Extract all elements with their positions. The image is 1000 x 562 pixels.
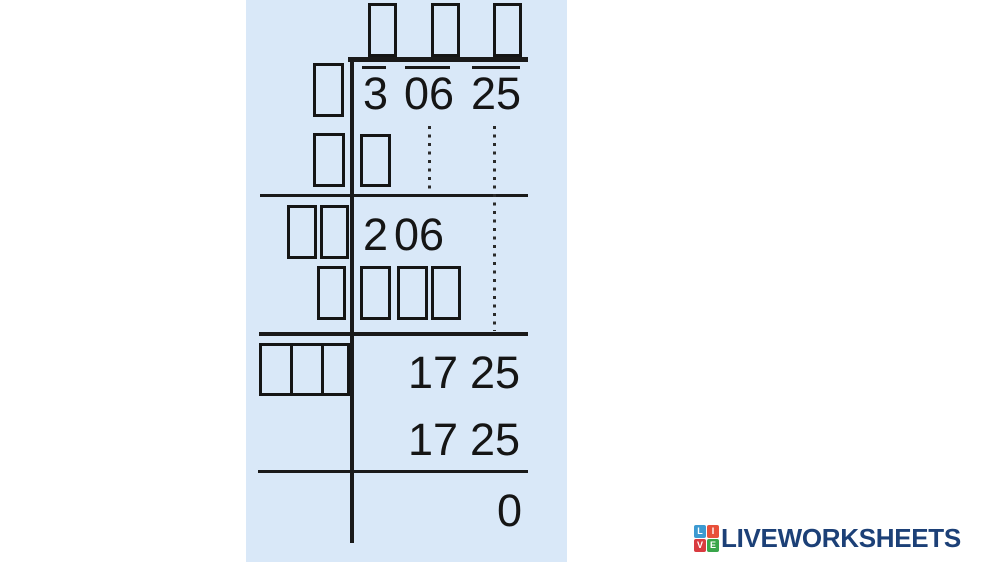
work-row2-group-1: 17: [408, 350, 458, 395]
liveworksheets-logo-icon: L I V E: [694, 525, 719, 552]
radicand-group-3: 25: [471, 71, 521, 116]
liveworksheets-logo: L I V E LIVEWORKSHEETS: [694, 523, 961, 554]
answer-box-row5-grid[interactable]: [259, 343, 350, 396]
answer-box-row4-left[interactable]: [317, 266, 346, 320]
answer-box-row4-right-1[interactable]: [360, 266, 391, 320]
work-row2-group-2: 25: [470, 350, 520, 395]
answer-box-row4-right-2[interactable]: [397, 266, 428, 320]
logo-tile-v: V: [694, 539, 706, 552]
dotted-guide-line-1: [428, 126, 431, 192]
answer-box-quotient-3[interactable]: [493, 3, 522, 57]
answer-box-row2-right[interactable]: [360, 134, 391, 187]
dotted-guide-line-2: [493, 126, 496, 331]
work-row3-group-1: 17: [408, 417, 458, 462]
answer-box-row4-right-3[interactable]: [431, 266, 461, 320]
separator-line-3: [258, 470, 528, 473]
remainder-value: 0: [497, 488, 522, 533]
answer-box-row3-left-2[interactable]: [320, 205, 349, 259]
separator-line-2: [259, 332, 528, 336]
work-row3-group-2: 25: [470, 417, 520, 462]
top-rule-line: [348, 57, 528, 62]
cell-divider: [290, 346, 293, 393]
work-row1-group-1: 2: [363, 212, 388, 257]
liveworksheets-logo-text: LIVEWORKSHEETS: [721, 523, 961, 554]
radicand-group-2: 06: [404, 71, 454, 116]
answer-box-quotient-2[interactable]: [431, 3, 460, 57]
logo-tile-i: I: [707, 525, 719, 538]
work-row1-group-2: 06: [394, 212, 444, 257]
answer-box-row3-left-1[interactable]: [287, 205, 317, 259]
radicand-group-1: 3: [363, 71, 388, 116]
separator-line-1: [260, 194, 528, 197]
answer-box-divisor-1[interactable]: [313, 63, 344, 117]
cell-divider: [321, 346, 324, 393]
answer-box-quotient-1[interactable]: [368, 3, 397, 57]
logo-tile-e: E: [707, 539, 719, 552]
worksheet-page: 3 06 25 2 06 17 25 17 25 0 L I V E LIVEW…: [0, 0, 1000, 562]
logo-tile-l: L: [694, 525, 706, 538]
answer-box-row2-left[interactable]: [313, 133, 345, 187]
